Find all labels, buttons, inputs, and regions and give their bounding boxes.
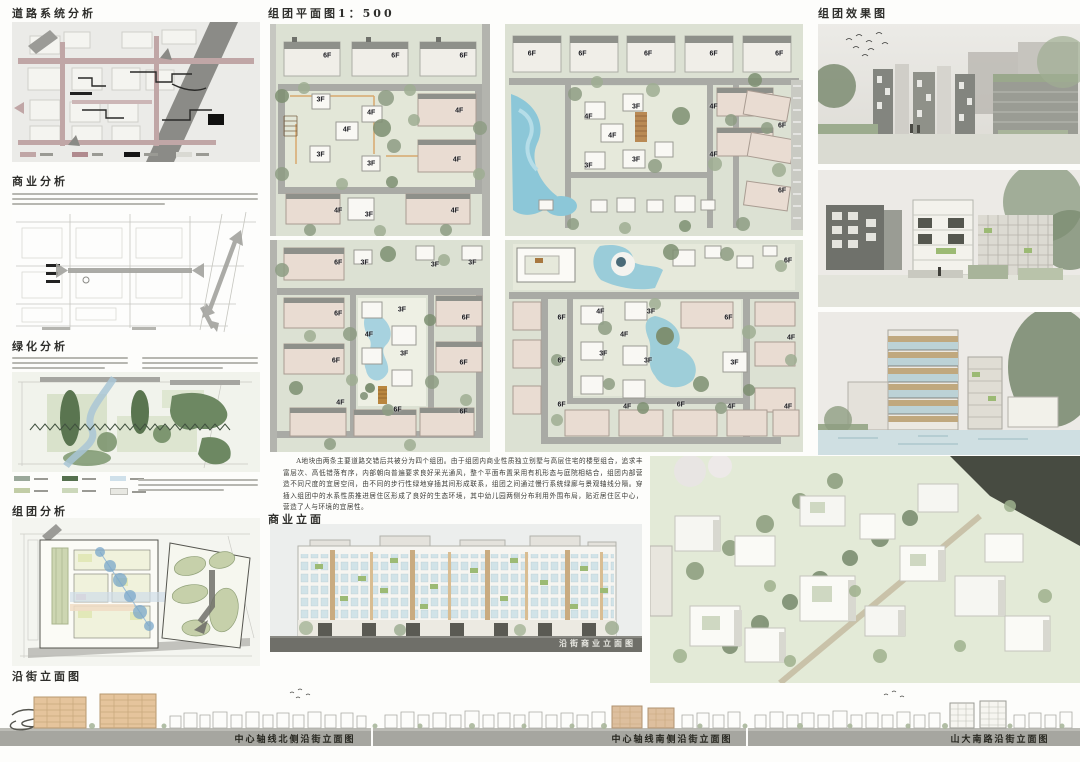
mid-rise-slabs bbox=[873, 64, 975, 134]
floor-label: 6F bbox=[784, 258, 792, 265]
left-dark-building bbox=[826, 205, 902, 270]
legend-item bbox=[14, 476, 48, 481]
commercial-elevation-panel: 沿街商业立面图 bbox=[270, 524, 642, 652]
street-caption-south: 中心轴线南侧沿街立面图 bbox=[611, 732, 732, 745]
edge-building bbox=[650, 546, 672, 616]
legend-swatch bbox=[62, 488, 78, 493]
micro-text-line bbox=[12, 362, 128, 364]
street-caption-north: 中心轴线北侧沿街立面图 bbox=[234, 732, 355, 745]
rendering-1 bbox=[818, 24, 1080, 164]
floor-label: 4F bbox=[336, 400, 344, 407]
legend-label-bar bbox=[34, 478, 48, 480]
floor-label: 6F bbox=[391, 52, 399, 59]
black-road-mark bbox=[70, 92, 92, 95]
micro-text-line bbox=[138, 489, 224, 491]
street-elevation-svg bbox=[0, 685, 1080, 755]
floor-label: 6F bbox=[334, 260, 342, 267]
floor-label: 6F bbox=[394, 406, 402, 413]
floor-label: 4F bbox=[334, 207, 342, 214]
main-tower bbox=[888, 330, 958, 430]
plan2-floor-labels: 6F6F6F6F6F4F3F4F3F3F4F4F6F6F bbox=[505, 24, 803, 236]
floor-label: 6F bbox=[462, 315, 470, 322]
legend-swatch bbox=[14, 488, 30, 493]
cluster-analysis-title: 组团分析 bbox=[12, 503, 68, 519]
floor-label: 3F bbox=[730, 359, 738, 366]
floor-label: 3F bbox=[317, 97, 325, 104]
gray-band bbox=[40, 377, 160, 382]
rendering-3 bbox=[818, 312, 1080, 455]
floor-label: 6F bbox=[332, 357, 340, 364]
road-analysis-map bbox=[12, 22, 260, 162]
floor-label: 4F bbox=[710, 152, 718, 159]
commercial-elevation-caption: 沿街商业立面图 bbox=[559, 638, 636, 649]
site-plan-1: 6F6F6F3F4F4F4F3F3F4F4F3F4F bbox=[270, 24, 490, 236]
legend-swatch bbox=[14, 476, 30, 481]
floor-label: 6F bbox=[775, 50, 783, 57]
floor-label: 4F bbox=[455, 107, 463, 114]
floor-label: 4F bbox=[620, 332, 628, 339]
render-title: 组团效果图 bbox=[818, 5, 888, 21]
floor-label: 3F bbox=[468, 260, 476, 267]
floor-label: 6F bbox=[460, 52, 468, 59]
rendering-4-svg bbox=[650, 456, 1080, 683]
floor-label: 6F bbox=[778, 188, 786, 195]
gray-band bbox=[170, 380, 240, 385]
plan3-floor-labels: 6F3F3F3F6F3F4F6F6F3F6F4F6F6F bbox=[270, 240, 490, 452]
plan-title: 组团平面图1：500 bbox=[268, 5, 395, 21]
legend-item bbox=[62, 476, 96, 481]
micro-text-line bbox=[12, 203, 165, 205]
floor-label: 6F bbox=[724, 315, 732, 322]
cluster-analysis-map bbox=[12, 518, 260, 666]
floor-label: 3F bbox=[431, 262, 439, 269]
micro-text-line bbox=[142, 362, 258, 364]
commerce-analysis-svg bbox=[12, 208, 260, 334]
floor-label: 4F bbox=[343, 127, 351, 134]
figure bbox=[938, 267, 941, 276]
road-analysis-title: 道路系统分析 bbox=[12, 5, 96, 21]
rendering-2 bbox=[818, 170, 1080, 307]
low-white-volume bbox=[1008, 397, 1058, 427]
floor-label: 4F bbox=[727, 404, 735, 411]
site-plan-3: 6F3F3F3F6F3F4F6F6F3F6F4F6F6F bbox=[270, 240, 490, 452]
micro-text-line bbox=[12, 367, 105, 369]
ground-band bbox=[0, 728, 1080, 746]
floor-label: 4F bbox=[453, 156, 461, 163]
street-caption-shanda: 山大南路沿街立面图 bbox=[950, 732, 1049, 745]
floor-label: 6F bbox=[710, 50, 718, 57]
planter bbox=[1018, 268, 1063, 280]
floor-label: 4F bbox=[596, 309, 604, 316]
road-analysis-svg bbox=[12, 22, 260, 162]
commerce-analysis-map bbox=[12, 208, 260, 334]
micro-text-line bbox=[138, 479, 258, 481]
floor-label: 6F bbox=[558, 402, 566, 409]
floor-label: 3F bbox=[317, 152, 325, 159]
floor-label: 3F bbox=[632, 156, 640, 163]
floor-label: 3F bbox=[367, 160, 375, 167]
greening-notes-left bbox=[12, 354, 128, 372]
micro-text-line bbox=[12, 193, 258, 195]
orange-band bbox=[70, 604, 134, 611]
micro-text-line bbox=[142, 357, 258, 359]
floor-label: 3F bbox=[647, 309, 655, 316]
floor-label: 4F bbox=[710, 103, 718, 110]
floor-label: 3F bbox=[584, 163, 592, 170]
planter bbox=[968, 265, 1008, 279]
secondary-tower bbox=[968, 357, 1002, 429]
center-building bbox=[913, 200, 973, 275]
micro-caption bbox=[42, 327, 70, 330]
micro-text-line bbox=[12, 198, 258, 200]
floor-label: 4F bbox=[584, 114, 592, 121]
legend-item bbox=[14, 488, 48, 493]
floor-label: 6F bbox=[528, 50, 536, 57]
floor-label: 4F bbox=[367, 110, 375, 117]
floor-label: 3F bbox=[400, 351, 408, 358]
floor-label: 4F bbox=[787, 334, 795, 341]
east-cluster-block bbox=[162, 543, 250, 648]
floor-label: 6F bbox=[578, 50, 586, 57]
floor-label: 4F bbox=[451, 207, 459, 214]
legend-swatch bbox=[110, 476, 126, 481]
legend-swatch bbox=[110, 488, 128, 495]
low-wing bbox=[848, 382, 888, 430]
floor-label: 3F bbox=[365, 211, 373, 218]
floor-label: 6F bbox=[558, 315, 566, 322]
floor-label: 6F bbox=[334, 311, 342, 318]
micro-text-line bbox=[138, 484, 258, 486]
greening-legend-row2 bbox=[14, 488, 146, 495]
legend-label-bar bbox=[34, 490, 48, 492]
greening-notes-right bbox=[142, 354, 258, 372]
design-description: A地块由两条主要道路交错后共被分为四个组团。由于组团内商业性质独立别墅与高层住宅… bbox=[283, 456, 643, 508]
floor-label: 4F bbox=[623, 404, 631, 411]
floor-label: 6F bbox=[460, 408, 468, 415]
floor-label: 6F bbox=[644, 50, 652, 57]
greening-legend-row1 bbox=[14, 476, 144, 481]
floor-label: 3F bbox=[599, 351, 607, 358]
greening-analysis-map bbox=[12, 372, 260, 472]
greening-legend-note bbox=[138, 476, 258, 494]
commerce-analysis-title: 商业分析 bbox=[12, 173, 68, 189]
floor-label: 4F bbox=[784, 404, 792, 411]
rendering-2-svg bbox=[818, 170, 1080, 307]
floor-label: 3F bbox=[361, 260, 369, 267]
legend-item bbox=[62, 488, 96, 493]
legend-label-bar bbox=[82, 478, 96, 480]
greening-analysis-title: 绿化分析 bbox=[12, 338, 68, 354]
site-plan-4: 6F6F4F3F6F4F4F6F3F3F3F6F4F6F4F4F bbox=[505, 240, 803, 452]
rendering-1-svg bbox=[818, 24, 1080, 164]
water bbox=[818, 430, 1080, 455]
floor-label: 6F bbox=[558, 357, 566, 364]
foreground-ground bbox=[818, 134, 1080, 164]
micro-text-line bbox=[142, 367, 223, 369]
micro-text-line bbox=[12, 357, 128, 359]
plan1-floor-labels: 6F6F6F3F4F4F4F3F3F4F4F3F4F bbox=[270, 24, 490, 236]
floor-label: 6F bbox=[460, 359, 468, 366]
floor-label: 3F bbox=[398, 306, 406, 313]
presentation-board: 道路系统分析 bbox=[0, 0, 1080, 762]
floor-label: 6F bbox=[778, 122, 786, 129]
low-wall bbox=[908, 270, 963, 278]
floor-label: 6F bbox=[677, 402, 685, 409]
floor-label: 3F bbox=[644, 357, 652, 364]
street-elevation-strip: 中心轴线北侧沿街立面图 中心轴线南侧沿街立面图 山大南路沿街立面图 bbox=[0, 685, 1080, 755]
floor-label: 6F bbox=[323, 52, 331, 59]
legend-label-bar bbox=[82, 490, 96, 492]
street-elevation-title: 沿街立面图 bbox=[12, 668, 82, 684]
floor-label: 3F bbox=[632, 103, 640, 110]
micro-caption bbox=[132, 327, 156, 330]
entrance-block bbox=[208, 114, 224, 125]
commercial-elevation-svg bbox=[270, 524, 642, 652]
blossom-tree bbox=[674, 456, 706, 487]
legend-swatch bbox=[62, 476, 78, 481]
rendering-4-aerial bbox=[650, 456, 1080, 683]
plan4-floor-labels: 6F6F4F3F6F4F4F6F3F3F3F6F4F6F4F4F bbox=[505, 240, 803, 452]
floor-label: 4F bbox=[365, 332, 373, 339]
floor-label: 4F bbox=[608, 133, 616, 140]
site-plan-2: 6F6F6F6F6F4F3F4F3F3F4F4F6F6F bbox=[505, 24, 803, 236]
rendering-3-svg bbox=[818, 312, 1080, 455]
tree bbox=[824, 406, 852, 434]
commerce-analysis-notes bbox=[12, 190, 258, 208]
cluster-analysis-svg bbox=[12, 518, 260, 666]
greening-analysis-svg bbox=[12, 372, 260, 472]
